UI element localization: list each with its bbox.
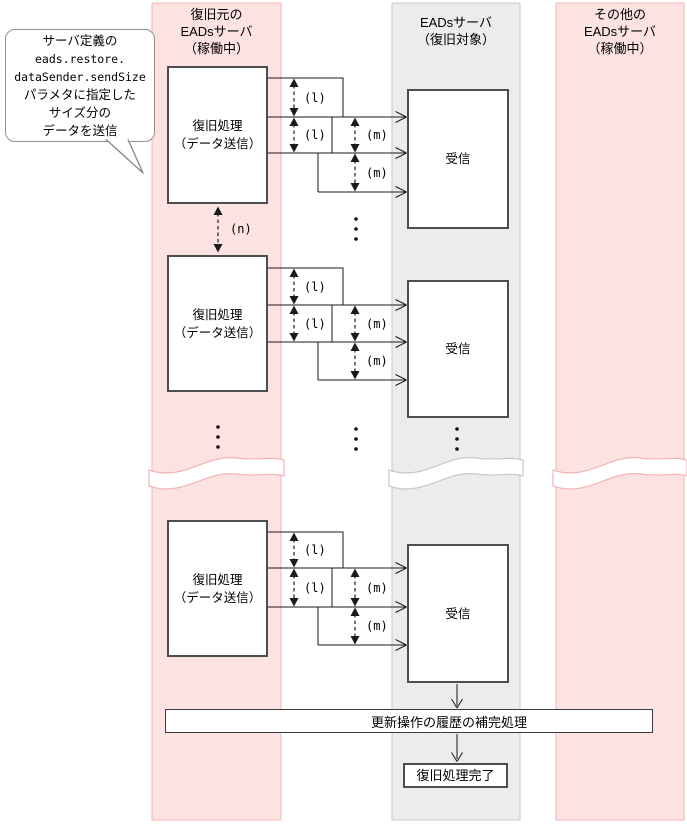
- interval-l-arrow-group-2-head-up: [290, 306, 299, 315]
- lane-title-line: （稼働中）: [556, 40, 684, 57]
- ellipsis-mid-gap2: [354, 437, 358, 441]
- interval-l-arrow-group-3-head-up: [290, 569, 299, 578]
- interval-l-arrow-group-3-head-down: [290, 559, 299, 568]
- callout-line: eads.restore.: [6, 50, 154, 68]
- recovery-send-box-1: 復旧処理 （データ送信）: [167, 66, 268, 204]
- label-m: (m): [366, 165, 388, 181]
- callout-line: パラメタに指定した: [6, 86, 154, 104]
- box-label-line: 受信: [445, 340, 470, 358]
- callout-line: サーバ定義の: [6, 32, 154, 50]
- interval-m-arrow-group-1-head-down: [351, 183, 360, 192]
- lane-others: [556, 3, 684, 820]
- label-l: (l): [304, 90, 326, 106]
- callout-bubble: サーバ定義のeads.restore.dataSender.sendSizeパラ…: [5, 29, 155, 142]
- interval-l-arrow-group-2-head-down: [290, 296, 299, 305]
- ellipsis-lane1-gap2: [216, 445, 220, 449]
- ellipsis-lane2-gap2: [455, 427, 459, 431]
- interval-m-arrow-group-2-head-down: [351, 371, 360, 380]
- interval-m-arrow-group-3-head-up: [351, 608, 360, 617]
- interval-m-arrow-group-2-head-down: [351, 333, 360, 342]
- ellipsis-mid-gap2: [354, 447, 358, 451]
- label-m: (m): [366, 580, 388, 596]
- recovery-done-box: 復旧処理完了: [403, 763, 508, 788]
- box-label-line: （データ送信）: [174, 135, 262, 153]
- label-l: (l): [304, 316, 326, 332]
- ellipsis-lane2-gap2: [455, 447, 459, 451]
- interval-m-arrow-group-2-head-up: [351, 306, 360, 315]
- interval-m-arrow-group-1-head-up: [351, 118, 360, 127]
- receive-box-3: 受信: [407, 544, 509, 683]
- label-l: (l): [304, 279, 326, 295]
- lane-title-line: EADsサーバ: [392, 14, 520, 31]
- label-m: (m): [366, 127, 388, 143]
- ellipsis-mid-gap1: [354, 237, 358, 241]
- interval-l-arrow-group-1-head-up: [290, 118, 299, 127]
- interval-l-arrow-group-3-head-up: [290, 533, 299, 542]
- lane-title-line: EADsサーバ: [556, 23, 684, 40]
- lane-title-line: 復旧元の: [152, 6, 281, 23]
- interval-m-arrow-group-2-head-up: [351, 343, 360, 352]
- box-label-line: 受信: [445, 150, 470, 168]
- interval-l-arrow-group-1-head-down: [290, 108, 299, 117]
- label-m: (m): [366, 316, 388, 332]
- box-label-line: 復旧処理: [192, 117, 242, 135]
- interval-m-arrow-group-3-head-down: [351, 636, 360, 645]
- label-m: (m): [366, 618, 388, 634]
- lane-title-line: EADsサーバ: [152, 23, 281, 40]
- interval-l-arrow-group-1-head-down: [290, 144, 299, 153]
- diagram-canvas: 復旧元の EADsサーバ （稼働中） EADsサーバ （復旧対象） その他の E…: [0, 0, 687, 825]
- lane-title-source: 復旧元の EADsサーバ （稼働中）: [152, 6, 281, 57]
- label-m: (m): [366, 353, 388, 369]
- interval-m-arrow-group-1-head-down: [351, 144, 360, 153]
- ellipsis-mid-gap1: [354, 217, 358, 221]
- ellipsis-lane1-gap2: [216, 425, 220, 429]
- interval-l-arrow-group-1-head-up: [290, 79, 299, 88]
- interval-m-arrow-group-3-head-down: [351, 598, 360, 607]
- label-l: (l): [304, 580, 326, 596]
- label-l: (l): [304, 542, 326, 558]
- ellipsis-mid-gap2: [354, 427, 358, 431]
- interval-l-arrow-group-2-head-up: [290, 269, 299, 278]
- box-label-line: 復旧処理: [192, 571, 242, 589]
- interval-l-arrow-group-2-head-down: [290, 333, 299, 342]
- box-label-line: （データ送信）: [174, 589, 262, 607]
- callout-line: データを送信: [6, 122, 154, 140]
- label-n: (n): [230, 221, 252, 237]
- recovery-send-box-2: 復旧処理 （データ送信）: [167, 255, 268, 392]
- callout-line: サイズ分の: [6, 104, 154, 122]
- history-completion-bar: 更新操作の履歴の補完処理: [165, 709, 653, 733]
- ellipsis-lane2-gap2: [455, 437, 459, 441]
- lane-title-line: その他の: [556, 6, 684, 23]
- lane-title-target: EADsサーバ （復旧対象）: [392, 14, 520, 48]
- interval-l-arrow-group-3-head-down: [290, 598, 299, 607]
- lane-title-line: （稼働中）: [152, 40, 281, 57]
- lane-title-line: （復旧対象）: [392, 31, 520, 48]
- lane-title-others: その他の EADsサーバ （稼働中）: [556, 6, 684, 57]
- callout-tail: [100, 139, 150, 177]
- box-label-line: 復旧処理完了: [416, 767, 494, 785]
- receive-box-2: 受信: [407, 280, 509, 418]
- ellipsis-lane1-gap2: [216, 435, 220, 439]
- history-completion-label: 更新操作の履歴の補完処理: [371, 712, 527, 731]
- interval-m-arrow-group-3-head-up: [351, 569, 360, 578]
- box-label-line: 受信: [445, 605, 470, 623]
- receive-box-1: 受信: [407, 89, 509, 229]
- box-label-line: 復旧処理: [192, 306, 242, 324]
- recovery-send-box-3: 復旧処理 （データ送信）: [167, 520, 268, 657]
- ellipsis-mid-gap1: [354, 227, 358, 231]
- interval-m-arrow-group-1-head-up: [351, 154, 360, 163]
- label-l: (l): [304, 127, 326, 143]
- callout-line: dataSender.sendSize: [6, 68, 154, 86]
- box-label-line: （データ送信）: [174, 324, 262, 342]
